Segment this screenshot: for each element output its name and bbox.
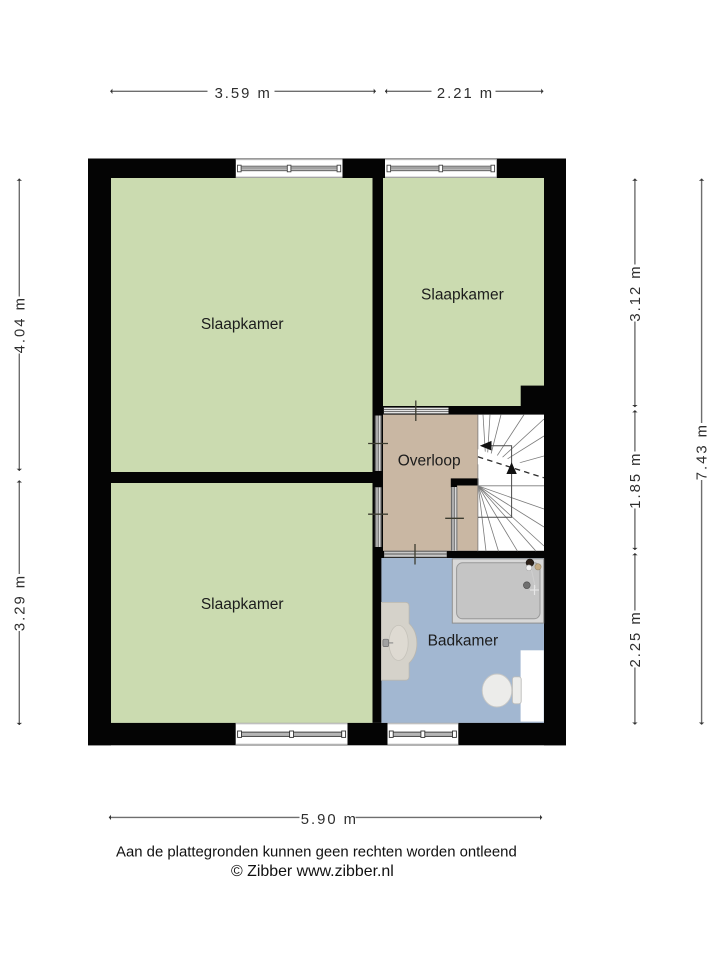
svg-text:4.04 m: 4.04 m bbox=[12, 296, 28, 353]
svg-text:Overloop: Overloop bbox=[398, 453, 461, 470]
svg-text:1.85 m: 1.85 m bbox=[628, 451, 644, 508]
svg-text:7.43 m: 7.43 m bbox=[695, 423, 711, 480]
svg-text:Slaapkamer: Slaapkamer bbox=[201, 316, 284, 333]
svg-text:2.21 m: 2.21 m bbox=[437, 86, 494, 102]
svg-text:3.12 m: 3.12 m bbox=[628, 264, 644, 321]
svg-text:3.29 m: 3.29 m bbox=[12, 574, 28, 631]
svg-text:Aan de plattegronden kunnen ge: Aan de plattegronden kunnen geen rechten… bbox=[116, 844, 517, 860]
svg-text:© Zibber www.zibber.nl: © Zibber www.zibber.nl bbox=[231, 863, 394, 880]
svg-text:5.90 m: 5.90 m bbox=[301, 812, 358, 828]
svg-text:Slaapkamer: Slaapkamer bbox=[421, 287, 504, 304]
svg-text:Slaapkamer: Slaapkamer bbox=[201, 596, 284, 613]
svg-text:2.25 m: 2.25 m bbox=[628, 610, 644, 667]
svg-text:Badkamer: Badkamer bbox=[428, 633, 499, 650]
svg-text:3.59 m: 3.59 m bbox=[215, 86, 272, 102]
